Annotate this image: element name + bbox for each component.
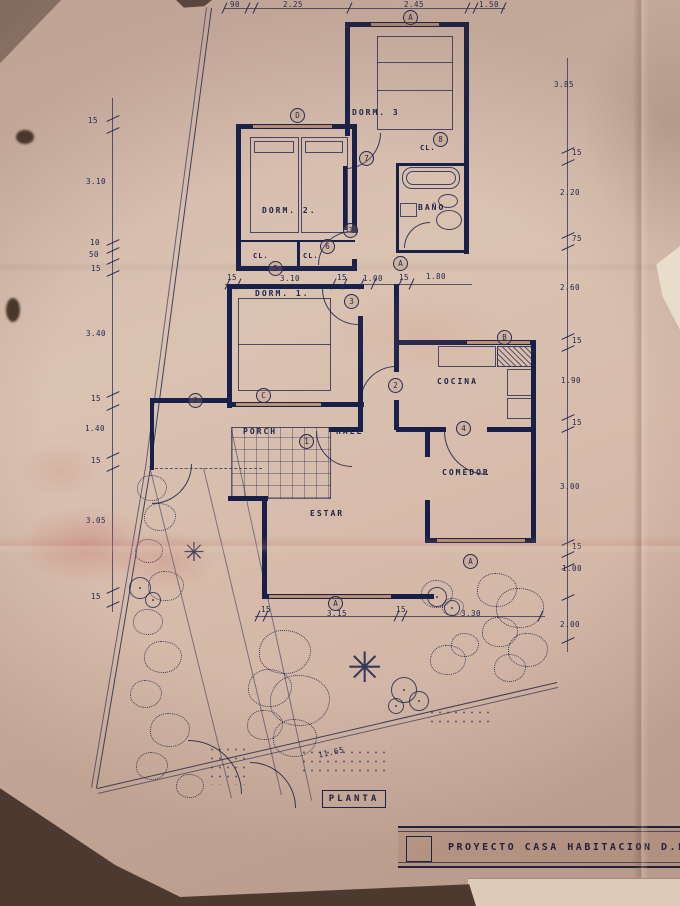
plan-title-label: PLANTA	[329, 794, 380, 804]
dim-tick	[106, 452, 119, 459]
dim-tick	[106, 127, 119, 134]
dimension-label: 15	[91, 394, 101, 403]
wall	[396, 163, 468, 166]
tree-center	[418, 700, 420, 702]
wall	[227, 284, 232, 408]
room-label: BAÑO	[418, 203, 445, 212]
plan-title-box: PLANTA	[322, 790, 386, 808]
wall	[464, 22, 469, 254]
dimension-label: 15	[572, 148, 582, 157]
dimension-label: 3.85	[554, 80, 574, 89]
wall	[531, 427, 536, 543]
floor-plan-drawing: DORM. 3DORM. 2.DORM. 1.BAÑOCOCINACOMEDOR…	[0, 0, 680, 906]
dimension-label: 1.80	[426, 272, 446, 281]
dimension-label: 1.40	[85, 424, 105, 433]
shrub	[144, 641, 182, 673]
wall	[396, 427, 446, 432]
project-title: PROYECTO CASA HABITACION D.F.L. N	[448, 842, 680, 853]
title-block: PROYECTO CASA HABITACION D.F.L. N	[398, 826, 680, 868]
wall	[396, 163, 399, 253]
room-label: CL.	[253, 252, 269, 260]
paper-hole-mark	[16, 130, 34, 144]
furniture	[377, 62, 453, 63]
dim-tick	[106, 465, 119, 472]
tree-center	[451, 607, 453, 609]
reference-marker: 4	[456, 421, 471, 436]
dimension-label: 2.20	[560, 188, 580, 197]
dim-tick	[106, 270, 119, 277]
tree-center	[436, 596, 438, 598]
reference-marker: A	[328, 596, 343, 611]
wall	[345, 22, 350, 136]
dimension-label: 2.25	[283, 0, 303, 9]
dimension-label: 3.00	[560, 482, 580, 491]
reference-marker: 2	[188, 393, 203, 408]
shrub	[150, 713, 190, 747]
dimension-label: 3.10	[280, 274, 300, 283]
reference-marker: D	[290, 108, 305, 123]
shrub	[137, 475, 167, 501]
gravel-dots	[428, 708, 490, 726]
blueprint-photo: DORM. 3DORM. 2.DORM. 1.BAÑOCOCINACOMEDOR…	[0, 0, 680, 906]
dimension-label: 1.90	[561, 376, 581, 385]
dim-tick	[561, 426, 574, 433]
furniture	[406, 171, 456, 185]
underlying-sheet-edge	[468, 878, 680, 906]
shrub	[135, 539, 163, 563]
dimension-label: 15	[572, 336, 582, 345]
room-label: DORM. 2.	[262, 206, 317, 215]
tree	[444, 600, 460, 616]
tree-center	[403, 689, 405, 691]
dimension-label: 15	[88, 116, 98, 125]
dimension-label: 3.10	[86, 177, 106, 186]
dim-tick	[106, 391, 119, 398]
dimension-label: 15	[91, 592, 101, 601]
dimension-line	[112, 98, 113, 612]
room-label: HALL	[336, 427, 363, 436]
reference-marker: A	[463, 554, 478, 569]
dim-tick	[106, 601, 119, 608]
shrub	[133, 609, 163, 635]
dim-tick	[561, 594, 574, 601]
reference-marker: B	[497, 330, 512, 345]
furniture	[507, 369, 532, 396]
room-label: CL.	[303, 252, 319, 260]
gravel-dots	[208, 745, 248, 785]
dim-tick	[106, 258, 119, 265]
dimension-label: 90	[230, 0, 240, 9]
dim-tick	[561, 244, 574, 251]
door-arc	[404, 222, 430, 248]
dimension-label: 1.00	[562, 564, 582, 573]
tree	[409, 691, 429, 711]
dim-tick	[561, 551, 574, 558]
dimension-label: 15	[572, 542, 582, 551]
room-label: COMEDOR	[442, 468, 490, 477]
dim-tick	[106, 239, 119, 246]
plant-starburst: ✳	[347, 647, 382, 689]
reference-marker: A	[403, 10, 418, 25]
reference-marker: 3	[344, 294, 359, 309]
dimension-label: 50	[89, 250, 99, 259]
shrub	[259, 630, 311, 674]
furniture	[497, 346, 532, 367]
shrub	[130, 680, 162, 707]
wall	[236, 124, 241, 271]
dimension-label: 75	[572, 234, 582, 243]
dimension-label: 3.05	[86, 516, 106, 525]
dimension-label: 1.50	[479, 0, 499, 9]
shrub	[136, 752, 168, 779]
dimension-label: 2.00	[560, 620, 580, 629]
furniture	[254, 141, 294, 153]
tree-center	[152, 599, 154, 601]
dim-tick	[106, 247, 119, 254]
room-label: ESTAR	[310, 509, 344, 518]
furniture	[438, 346, 496, 367]
tree	[145, 592, 161, 608]
reference-marker: 2	[388, 378, 403, 393]
furniture	[400, 203, 417, 217]
dim-tick	[561, 159, 574, 166]
room-label: DORM. 3	[352, 108, 400, 117]
reference-marker: 8	[433, 132, 448, 147]
furniture	[377, 90, 453, 91]
dimension-label: 3.40	[86, 329, 106, 338]
reference-marker: C	[256, 388, 271, 403]
dimension-label: 15	[91, 264, 101, 273]
furniture	[305, 141, 343, 153]
reference-marker: 6	[320, 239, 335, 254]
plant-starburst: ✳	[183, 540, 205, 566]
dimension-line	[224, 8, 505, 9]
furniture	[507, 398, 532, 419]
window	[437, 538, 525, 543]
wall	[297, 240, 300, 267]
reference-marker: 7	[359, 151, 374, 166]
reference-marker: 3	[343, 223, 358, 238]
tree-center	[139, 587, 141, 589]
dimension-line	[567, 58, 568, 652]
dim-tick	[561, 637, 574, 644]
wall	[487, 427, 536, 432]
dim-tick	[561, 345, 574, 352]
dim-tick	[106, 404, 119, 411]
shrub	[451, 633, 479, 657]
room-label: COCINA	[437, 377, 478, 386]
shrub	[144, 503, 176, 530]
window	[236, 402, 321, 407]
furniture	[436, 210, 462, 230]
room-label: DORM. 1.	[255, 289, 310, 298]
dimension-line	[225, 284, 472, 285]
dimension-label: 10	[90, 238, 100, 247]
porch-tiles	[231, 427, 331, 499]
paper-hole-mark	[6, 298, 20, 322]
tree-center	[395, 705, 397, 707]
dimension-label: 2.60	[560, 283, 580, 292]
dim-tick	[106, 115, 119, 122]
door-arc	[250, 762, 296, 808]
dimension-label: 2.45	[404, 0, 424, 9]
wall	[394, 400, 399, 430]
window	[253, 124, 332, 129]
dimension-label: 15	[91, 456, 101, 465]
wall	[425, 500, 430, 543]
title-block-cell	[406, 836, 432, 862]
reference-marker: 5	[268, 261, 283, 276]
room-label: CL.	[420, 144, 436, 152]
dimension-label: 3.30	[461, 609, 481, 618]
tree	[388, 698, 404, 714]
reference-marker: A	[393, 256, 408, 271]
shrub	[176, 774, 204, 798]
dim-tick	[106, 587, 119, 594]
wall	[394, 284, 399, 344]
furniture	[238, 344, 331, 345]
wall	[396, 250, 468, 253]
shrub	[494, 654, 526, 681]
